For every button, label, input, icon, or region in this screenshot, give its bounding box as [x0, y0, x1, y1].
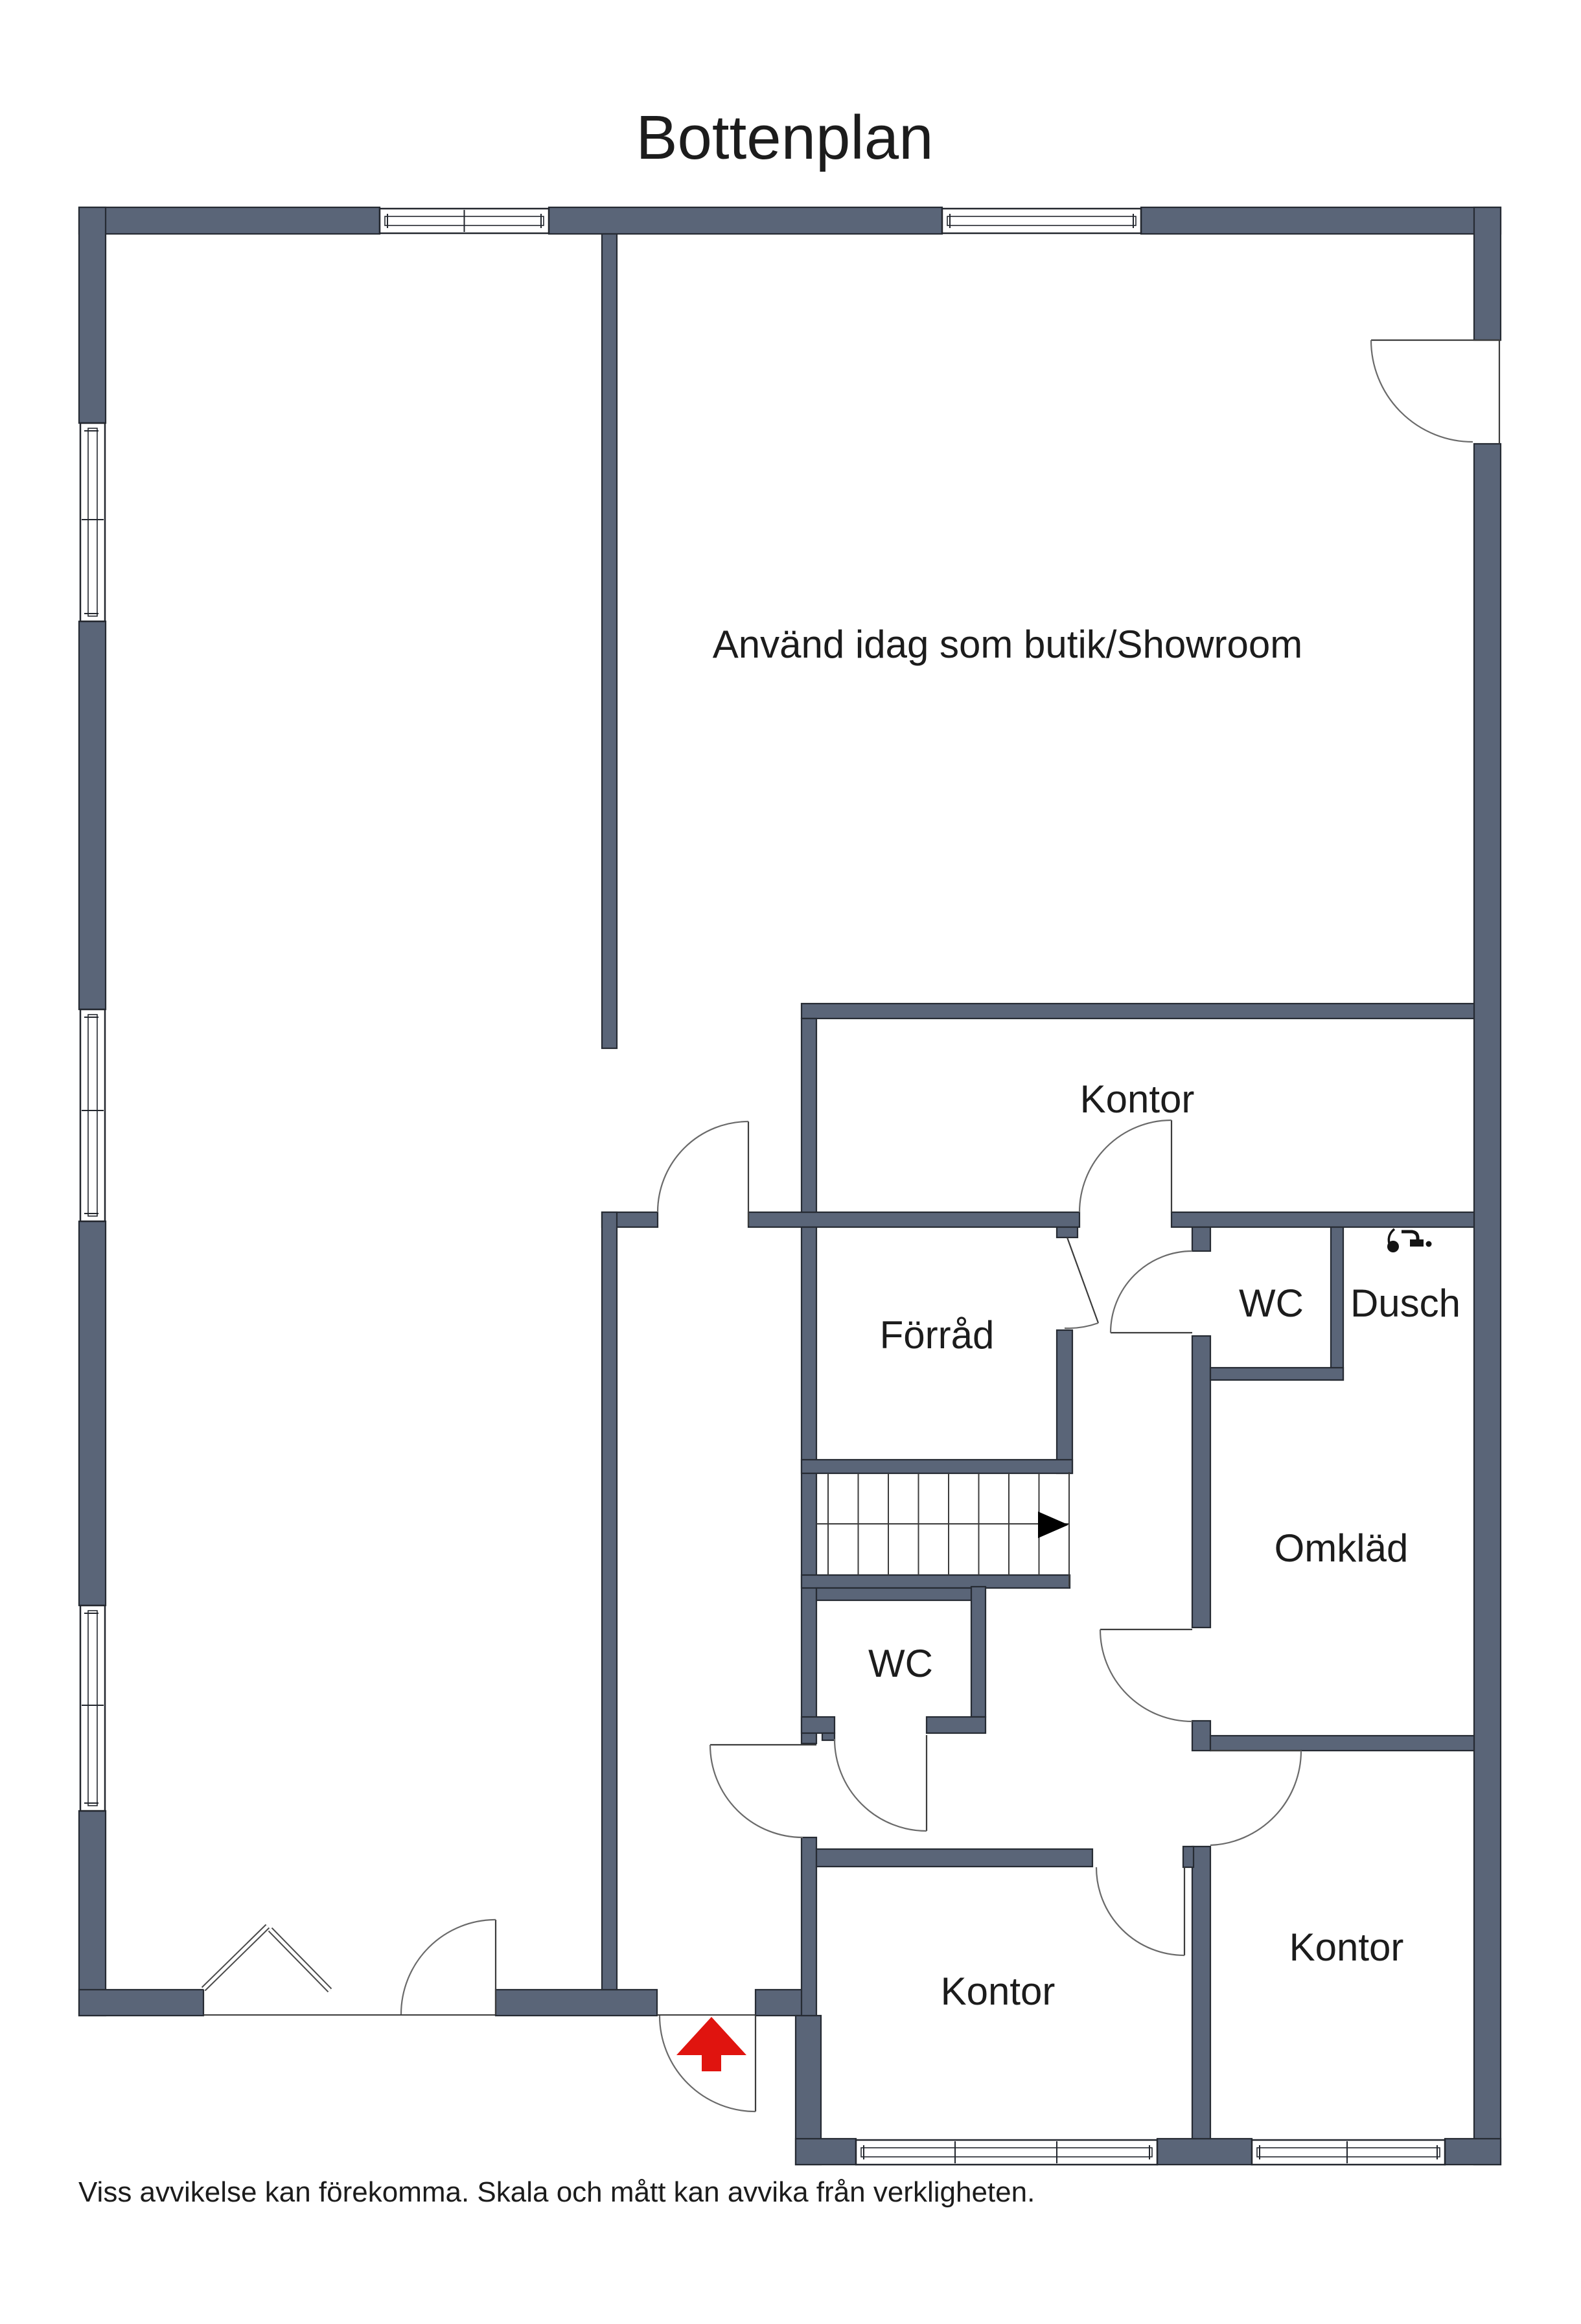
- svg-text:Omkläd: Omkläd: [1275, 1526, 1409, 1570]
- svg-text:WC: WC: [868, 1642, 933, 1685]
- svg-text:Använd idag som butik/Showroom: Använd idag som butik/Showroom: [713, 623, 1303, 666]
- svg-text:Viss avvikelse kan förekomma.: Viss avvikelse kan förekomma. Skala och …: [78, 2176, 1035, 2208]
- svg-text:Förråd: Förråd: [880, 1313, 995, 1357]
- svg-text:Kontor: Kontor: [941, 1970, 1056, 2013]
- svg-text:WC: WC: [1239, 1282, 1304, 1325]
- svg-text:Dusch: Dusch: [1350, 1282, 1460, 1325]
- svg-text:Kontor: Kontor: [1080, 1077, 1195, 1121]
- svg-text:Bottenplan: Bottenplan: [636, 103, 933, 172]
- svg-text:Kontor: Kontor: [1289, 1926, 1404, 1969]
